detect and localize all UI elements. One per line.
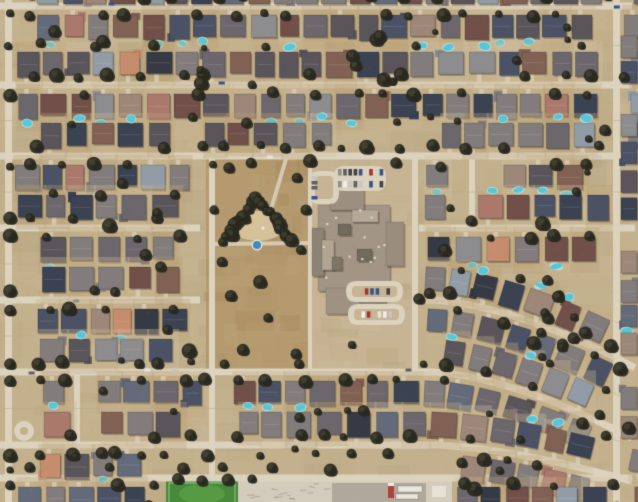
aerial-imagery-canvas bbox=[0, 0, 638, 502]
satellite-view: Overhead satellite view of a dense subur… bbox=[0, 0, 638, 502]
